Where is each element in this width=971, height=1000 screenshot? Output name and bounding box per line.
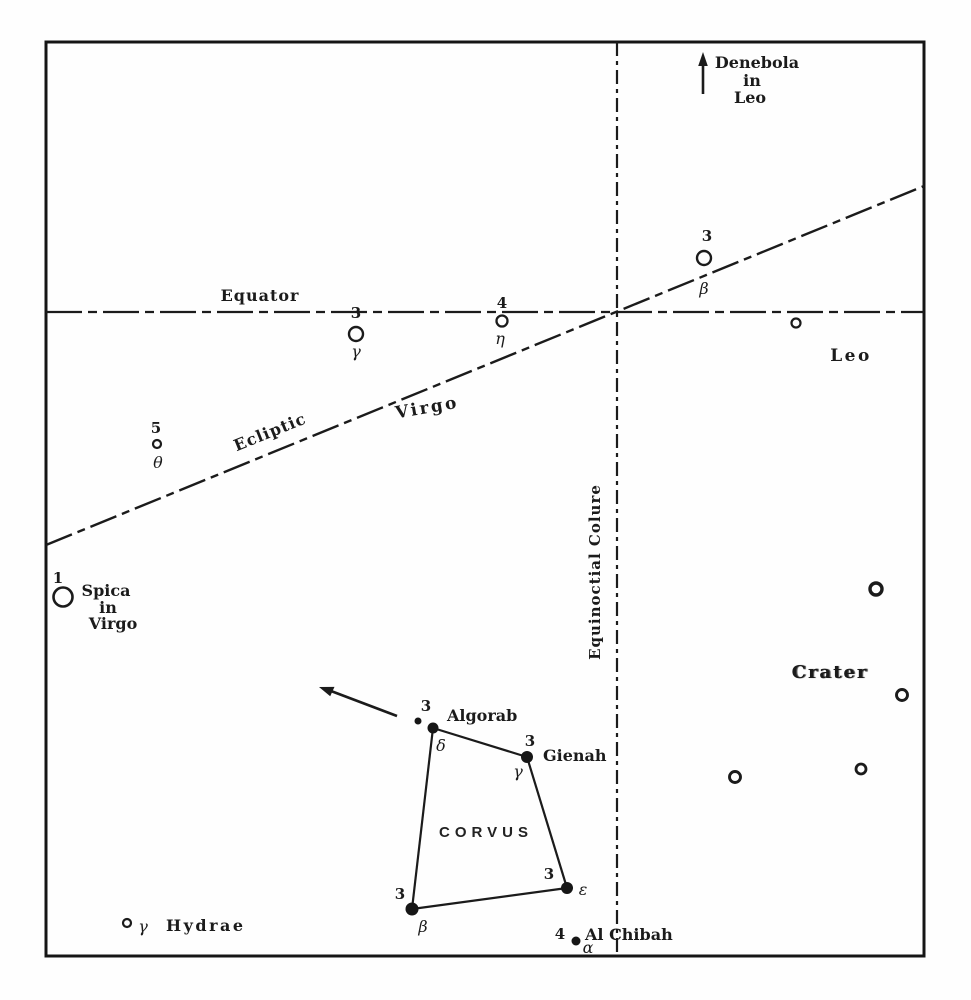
equinoctial-colure-label: Equinoctial Colure bbox=[586, 484, 604, 660]
star-circle-icon bbox=[349, 327, 363, 341]
denebola-direction-arrow: Denebola in Leo bbox=[698, 52, 799, 107]
star-algorab: 3 δ Algorab bbox=[421, 697, 518, 755]
star-faint-dot bbox=[415, 718, 422, 725]
star-gienah: 3 γ Gienah bbox=[513, 732, 607, 781]
svg-text:5: 5 bbox=[151, 419, 161, 437]
star-gamma-hydrae: γ Hydrae bbox=[123, 916, 246, 936]
star-dot-icon bbox=[406, 903, 419, 916]
star-dot-icon bbox=[521, 751, 533, 763]
svg-text:θ: θ bbox=[153, 453, 163, 472]
star-eta-virginis: 4 η bbox=[495, 294, 507, 348]
star-circle-icon bbox=[123, 919, 131, 927]
star-circle-icon bbox=[497, 316, 508, 327]
ecliptic-line bbox=[46, 186, 924, 545]
corvus-label: CORVUS bbox=[439, 824, 533, 841]
arrow-up-icon bbox=[698, 52, 708, 66]
denebola-note-line1: Denebola bbox=[715, 53, 799, 72]
svg-text:ε: ε bbox=[579, 880, 588, 899]
al-chibah-name: Al Chibah bbox=[584, 925, 673, 944]
crater-label: Crater bbox=[792, 662, 869, 683]
denebola-note-line3: Leo bbox=[734, 88, 766, 107]
chart-border bbox=[46, 42, 924, 956]
gamma-hydrae-name: Hydrae bbox=[166, 916, 246, 935]
star-chart-figure: Equator Ecliptic Equinoctial Colure Virg… bbox=[0, 0, 971, 1000]
svg-text:β: β bbox=[698, 279, 708, 298]
svg-text:1: 1 bbox=[53, 569, 63, 587]
algorab-name: Algorab bbox=[446, 706, 517, 725]
star-circle-icon bbox=[897, 690, 908, 701]
star-beta-virginis: 3 β bbox=[697, 227, 712, 298]
equator-label: Equator bbox=[221, 286, 300, 305]
svg-text:γ: γ bbox=[138, 917, 148, 936]
leo-label: Leo bbox=[830, 346, 872, 366]
svg-text:3: 3 bbox=[702, 227, 712, 245]
svg-text:γ: γ bbox=[351, 342, 361, 361]
star-leo-unnamed bbox=[792, 319, 801, 328]
star-spica: 1 Spica in Virgo bbox=[53, 569, 138, 633]
star-al-chibah: 4 α Al Chibah bbox=[555, 925, 673, 957]
svg-text:4: 4 bbox=[497, 294, 507, 312]
star-circle-icon bbox=[730, 772, 741, 783]
svg-text:η: η bbox=[495, 329, 505, 348]
svg-text:β: β bbox=[417, 917, 427, 936]
star-circle-icon bbox=[54, 588, 73, 607]
svg-text:3: 3 bbox=[395, 885, 405, 903]
svg-text:3: 3 bbox=[544, 865, 554, 883]
svg-text:3: 3 bbox=[421, 697, 431, 715]
gienah-name: Gienah bbox=[543, 746, 607, 765]
star-dot-icon bbox=[561, 882, 573, 894]
svg-text:3: 3 bbox=[525, 732, 535, 750]
svg-text:3: 3 bbox=[351, 304, 361, 322]
star-circle-icon bbox=[153, 440, 161, 448]
arrow-upleft-icon bbox=[319, 687, 335, 696]
corvus-motion-arrow bbox=[319, 687, 397, 716]
star-gamma-virginis: 3 γ bbox=[349, 304, 363, 361]
star-dot-icon bbox=[428, 723, 439, 734]
star-circle-icon bbox=[870, 583, 882, 595]
star-theta-virginis: 5 θ bbox=[151, 419, 163, 472]
star-chart-page: Equator Ecliptic Equinoctial Colure Virg… bbox=[0, 0, 971, 1000]
svg-text:γ: γ bbox=[513, 762, 523, 781]
svg-text:4: 4 bbox=[555, 925, 565, 943]
svg-text:δ: δ bbox=[436, 736, 446, 755]
ecliptic-label: Ecliptic bbox=[231, 409, 309, 455]
spica-name-line3: Virgo bbox=[88, 614, 138, 633]
star-beta-corvi: 3 β bbox=[395, 885, 428, 936]
star-circle-icon bbox=[697, 251, 711, 265]
star-circle-icon bbox=[856, 764, 866, 774]
star-dot-icon bbox=[572, 937, 581, 946]
virgo-label: Virgo bbox=[393, 393, 461, 424]
